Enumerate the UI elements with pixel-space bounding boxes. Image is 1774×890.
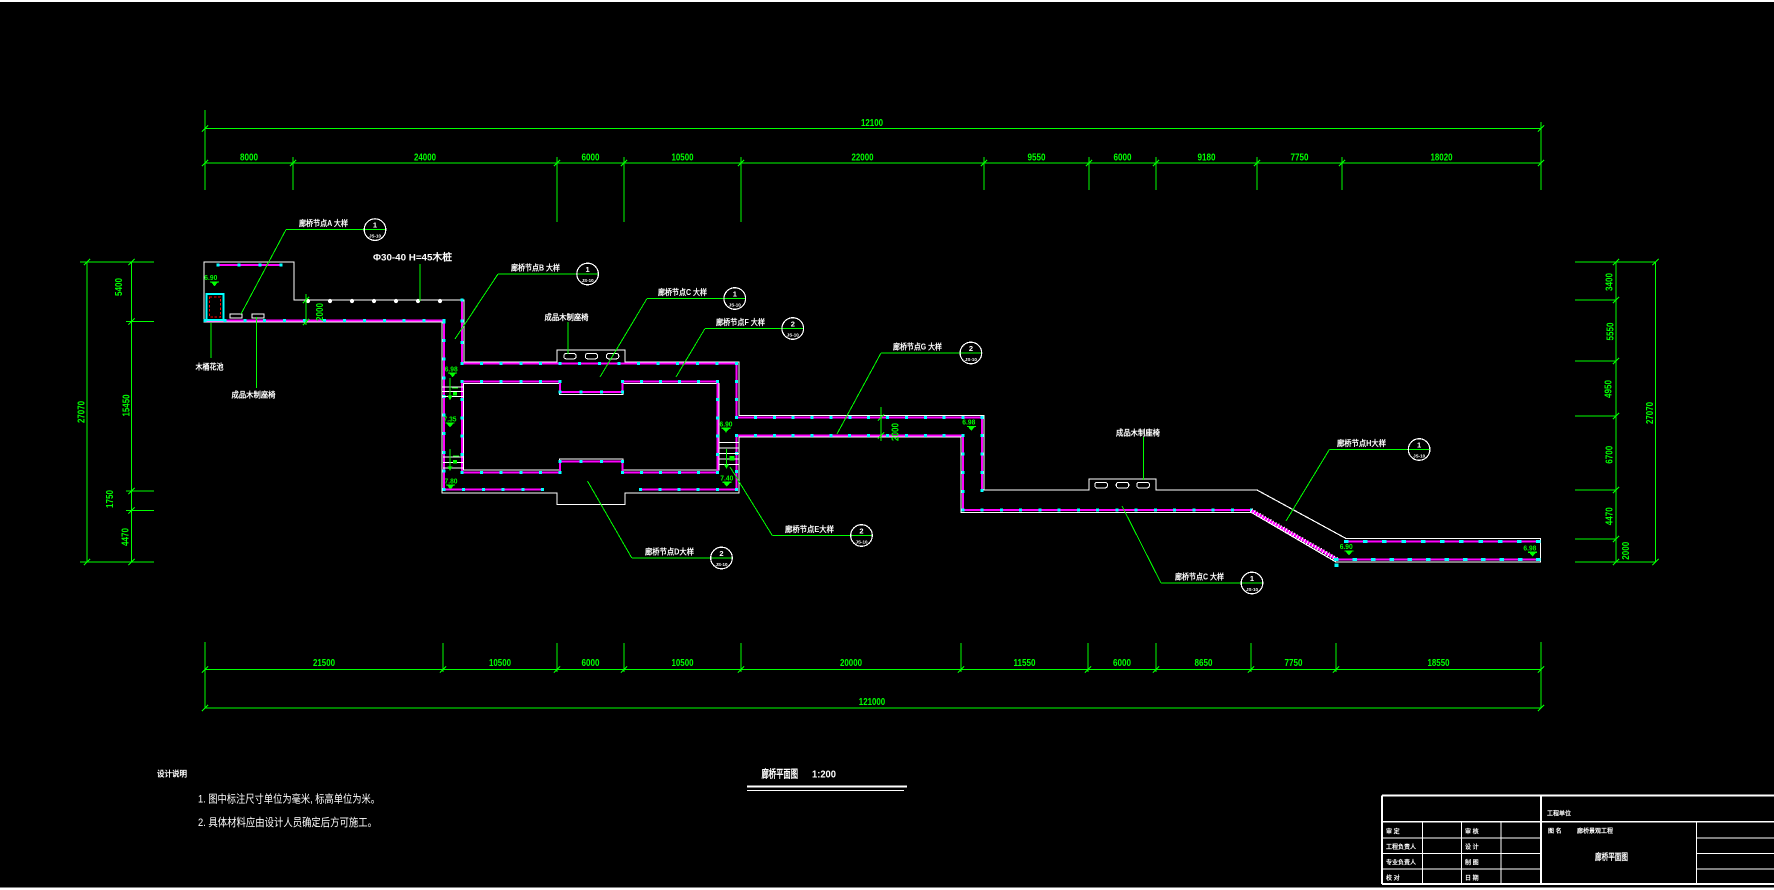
- svg-text:廊桥节点D大样: 廊桥节点D大样: [645, 547, 694, 557]
- svg-text:7.35: 7.35: [444, 415, 457, 424]
- svg-text:2000: 2000: [890, 423, 902, 441]
- svg-text:9550: 9550: [1028, 152, 1046, 164]
- svg-text:JS-10: JS-10: [729, 303, 741, 308]
- svg-text:10500: 10500: [672, 657, 694, 669]
- svg-text:1750: 1750: [104, 490, 116, 508]
- svg-text:1: 1: [1250, 574, 1254, 583]
- svg-text:专业负责人: 专业负责人: [1386, 859, 1417, 867]
- svg-text:4950: 4950: [1603, 380, 1615, 398]
- svg-text:7750: 7750: [1291, 152, 1309, 164]
- svg-text:1:200: 1:200: [812, 770, 836, 781]
- svg-text:3400: 3400: [1604, 273, 1616, 291]
- svg-text:18020: 18020: [1431, 152, 1453, 164]
- svg-text:廊桥节点B 大样: 廊桥节点B 大样: [511, 263, 560, 273]
- svg-text:JS-10: JS-10: [856, 540, 868, 545]
- svg-text:4470: 4470: [1604, 507, 1616, 525]
- svg-text:5400: 5400: [113, 278, 125, 296]
- svg-text:2: 2: [859, 527, 863, 536]
- svg-text:制 图: 制 图: [1465, 859, 1479, 867]
- svg-text:1: 1: [1417, 441, 1421, 450]
- svg-text:廊桥节点H大样: 廊桥节点H大样: [1337, 438, 1386, 448]
- svg-text:121000: 121000: [859, 696, 886, 708]
- svg-text:8650: 8650: [1195, 657, 1213, 669]
- svg-text:10500: 10500: [672, 152, 694, 164]
- svg-text:1. 图中标注尺寸单位为毫米, 标高单位为米。: 1. 图中标注尺寸单位为毫米, 标高单位为米。: [198, 792, 380, 806]
- svg-text:JS-10: JS-10: [716, 562, 728, 567]
- svg-text:1: 1: [733, 290, 737, 299]
- svg-text:24000: 24000: [414, 152, 436, 164]
- svg-text:8000: 8000: [240, 152, 258, 164]
- svg-text:7.80: 7.80: [445, 476, 458, 485]
- svg-text:4470: 4470: [120, 528, 132, 546]
- svg-text:2000: 2000: [1620, 542, 1632, 560]
- svg-text:7750: 7750: [1285, 657, 1303, 669]
- svg-text:JS-10: JS-10: [1413, 454, 1425, 459]
- svg-text:2: 2: [969, 344, 973, 353]
- svg-text:2000: 2000: [314, 303, 326, 321]
- svg-text:廊桥节点E大样: 廊桥节点E大样: [785, 524, 834, 534]
- svg-text:7.40: 7.40: [720, 474, 733, 483]
- svg-text:JS-10: JS-10: [965, 357, 977, 362]
- svg-text:5550: 5550: [1605, 322, 1617, 340]
- svg-text:JS-10: JS-10: [582, 278, 594, 283]
- svg-text:27070: 27070: [76, 401, 88, 423]
- svg-text:Φ30-40 H=45木桩: Φ30-40 H=45木桩: [373, 252, 453, 264]
- svg-text:JS-10: JS-10: [787, 333, 799, 338]
- svg-text:6.98: 6.98: [445, 365, 458, 374]
- svg-text:JS-10: JS-10: [1246, 587, 1258, 592]
- svg-text:6700: 6700: [1604, 446, 1616, 464]
- svg-text:6.90: 6.90: [1340, 542, 1353, 551]
- svg-text:日 期: 日 期: [1465, 874, 1479, 882]
- svg-text:成品木制座椅: 成品木制座椅: [232, 390, 276, 400]
- svg-text:设 计: 设 计: [1465, 843, 1479, 851]
- svg-text:廊桥节点A 大样: 廊桥节点A 大样: [299, 218, 348, 228]
- svg-text:6000: 6000: [582, 152, 600, 164]
- svg-text:6000: 6000: [1114, 152, 1132, 164]
- svg-text:廊桥节点G 大样: 廊桥节点G 大样: [893, 342, 942, 352]
- svg-text:1: 1: [586, 265, 590, 274]
- svg-text:廊桥景观工程: 廊桥景观工程: [1577, 827, 1613, 835]
- svg-text:图 名: 图 名: [1548, 827, 1562, 835]
- svg-text:6.98: 6.98: [1523, 544, 1536, 553]
- svg-text:6000: 6000: [1113, 657, 1131, 669]
- svg-text:27070: 27070: [1644, 402, 1656, 424]
- svg-text:12100: 12100: [861, 117, 883, 129]
- svg-text:木桶花池: 木桶花池: [195, 362, 224, 372]
- svg-text:21500: 21500: [313, 657, 335, 669]
- svg-text:6.98: 6.98: [962, 418, 975, 427]
- svg-text:2. 具体材料应由设计人员确定后方可施工。: 2. 具体材料应由设计人员确定后方可施工。: [198, 815, 377, 829]
- svg-text:15450: 15450: [121, 394, 133, 416]
- svg-text:廊桥节点C 大样: 廊桥节点C 大样: [1175, 572, 1224, 582]
- svg-text:廊桥平面图: 廊桥平面图: [762, 767, 799, 781]
- svg-text:20000: 20000: [840, 657, 862, 669]
- svg-text:工程负责人: 工程负责人: [1386, 843, 1417, 851]
- svg-text:6000: 6000: [582, 657, 600, 669]
- svg-text:22000: 22000: [852, 152, 874, 164]
- svg-text:廊桥节点F 大样: 廊桥节点F 大样: [716, 317, 765, 327]
- svg-text:成品木制座椅: 成品木制座椅: [545, 312, 589, 322]
- svg-text:9180: 9180: [1198, 152, 1216, 164]
- svg-text:18550: 18550: [1428, 657, 1450, 669]
- svg-text:廊桥节点C 大样: 廊桥节点C 大样: [658, 287, 707, 297]
- svg-text:2: 2: [719, 549, 723, 558]
- svg-text:廊桥平面图: 廊桥平面图: [1595, 851, 1628, 862]
- svg-text:1: 1: [373, 221, 377, 230]
- svg-text:6.90: 6.90: [204, 273, 217, 282]
- svg-text:10500: 10500: [489, 657, 511, 669]
- svg-text:设计说明: 设计说明: [157, 769, 187, 779]
- svg-text:2: 2: [791, 320, 795, 329]
- svg-text:成品木制座椅: 成品木制座椅: [1116, 428, 1160, 438]
- svg-text:工程单位: 工程单位: [1547, 810, 1571, 818]
- svg-text:审 核: 审 核: [1465, 828, 1479, 836]
- svg-text:11550: 11550: [1014, 657, 1036, 669]
- svg-text:审 定: 审 定: [1386, 828, 1400, 836]
- svg-text:6.90: 6.90: [720, 420, 733, 429]
- svg-text:校 对: 校 对: [1386, 874, 1400, 882]
- svg-text:JS-10: JS-10: [369, 234, 381, 239]
